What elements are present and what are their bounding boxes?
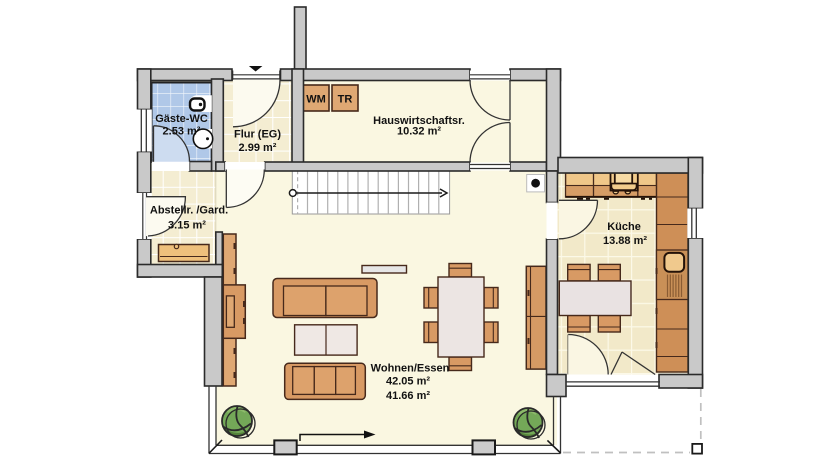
svg-text:Flur (EG): Flur (EG) <box>234 129 281 141</box>
svg-text:2.99 m²: 2.99 m² <box>239 142 277 154</box>
svg-text:TR: TR <box>338 94 353 106</box>
svg-text:Gäste-WC: Gäste-WC <box>155 113 208 125</box>
svg-text:42.05 m²: 42.05 m² <box>386 376 430 388</box>
svg-text:2.53 m²: 2.53 m² <box>163 126 201 138</box>
svg-text:41.66 m²: 41.66 m² <box>386 390 430 402</box>
svg-text:Küche: Küche <box>607 221 641 233</box>
svg-text:Abstellr. /Gard.: Abstellr. /Gard. <box>150 205 228 217</box>
svg-text:WM: WM <box>306 94 326 106</box>
svg-text:10.32 m²: 10.32 m² <box>397 126 441 138</box>
svg-text:Wohnen/Essen: Wohnen/Essen <box>371 363 450 375</box>
svg-text:13.88 m²: 13.88 m² <box>603 235 647 247</box>
svg-text:3.15 m²: 3.15 m² <box>168 220 206 232</box>
